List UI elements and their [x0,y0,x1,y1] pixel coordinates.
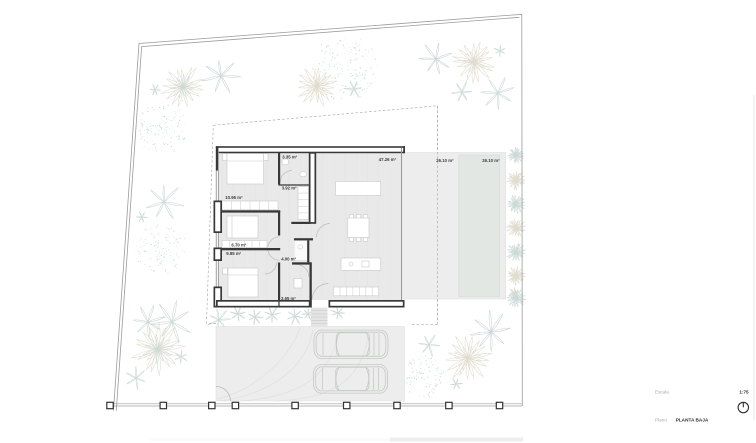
svg-text:26.10 m²: 26.10 m² [436,158,454,163]
svg-text:3.35 m²: 3.35 m² [282,154,297,159]
svg-text:26.10 m²: 26.10 m² [482,158,500,163]
svg-text:9.85 m²: 9.85 m² [226,251,241,256]
svg-text:6.70 m²: 6.70 m² [231,242,246,247]
svg-text:PLANTA BAJA: PLANTA BAJA [676,417,709,422]
svg-text:3.92 m²: 3.92 m² [282,186,297,191]
svg-text:10.95 m²: 10.95 m² [225,195,243,200]
svg-text:47.26 m²: 47.26 m² [379,157,397,162]
svg-text:Escala: Escala [655,390,669,395]
svg-text:3.65 m²: 3.65 m² [281,296,296,301]
svg-text:4.00 m²: 4.00 m² [281,256,296,261]
svg-text:Plano: Plano [655,417,667,422]
svg-text:1:75: 1:75 [739,390,749,395]
